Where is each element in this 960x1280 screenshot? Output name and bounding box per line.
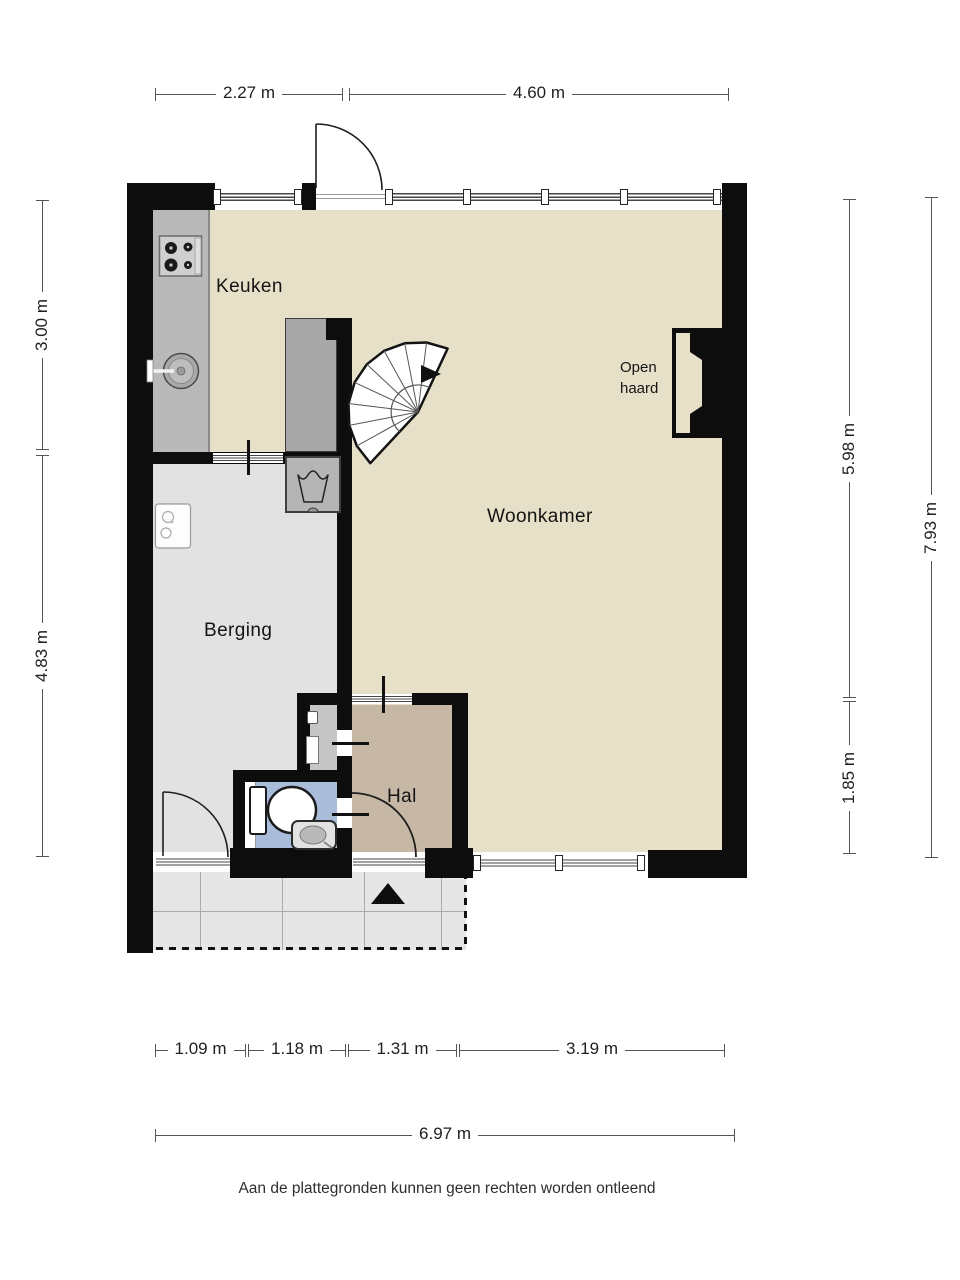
dim-tick	[843, 853, 856, 854]
dim-line	[330, 1050, 345, 1051]
room-label-keuken: Keuken	[216, 276, 283, 298]
dim-label: 1.09 m	[168, 1039, 234, 1059]
storage-door	[163, 792, 228, 857]
dim-line	[349, 1050, 370, 1051]
dim-right-inner-2: 1.85 m	[839, 701, 859, 854]
dim-tick	[36, 856, 49, 857]
disclaimer-text: Aan de plattegronden kunnen geen rechten…	[0, 1180, 894, 1198]
dim-bottom-2: 1.18 m	[248, 1040, 346, 1060]
dim-label: 2.27 m	[216, 83, 282, 103]
dim-line	[156, 1135, 412, 1136]
dim-top-1: 2.27 m	[155, 84, 343, 104]
entrance-arrow-icon	[371, 883, 405, 904]
dim-line	[42, 456, 43, 623]
dim-line	[572, 94, 728, 95]
dim-tick	[245, 1044, 246, 1057]
dim-label: 3.19 m	[559, 1039, 625, 1059]
dim-line	[849, 811, 850, 854]
floorplan-canvas: Keuken Woonkamer Berging Hal Open haard …	[0, 0, 960, 1280]
dim-line	[42, 358, 43, 449]
dim-line	[849, 702, 850, 745]
dim-label: 5.98 m	[839, 416, 859, 482]
top-entry-door	[316, 124, 382, 190]
dim-tick	[925, 857, 938, 858]
dim-line	[436, 1050, 457, 1051]
dim-line	[625, 1050, 724, 1051]
dim-label: 4.60 m	[506, 83, 572, 103]
room-label-hal: Hal	[387, 786, 417, 808]
dim-top-2: 4.60 m	[349, 84, 729, 104]
dim-label: 3.00 m	[32, 292, 52, 358]
stove-icon	[160, 236, 202, 276]
fixtures-overlay	[0, 0, 960, 1280]
washing-machine-icon	[286, 457, 340, 512]
dim-line	[42, 689, 43, 856]
dim-tick	[342, 88, 343, 101]
dim-line	[156, 94, 216, 95]
dim-line	[234, 1050, 246, 1051]
dim-line	[849, 482, 850, 698]
dim-label: 1.18 m	[264, 1039, 330, 1059]
dim-bottom-1: 1.09 m	[155, 1040, 246, 1060]
kitchen-sink-icon	[147, 354, 199, 389]
dim-tick	[345, 1044, 346, 1057]
dim-line	[42, 201, 43, 292]
fireplace-icon	[672, 328, 722, 438]
dim-tick	[36, 449, 49, 450]
dim-bottom-4: 3.19 m	[459, 1040, 725, 1060]
dim-line	[249, 1050, 264, 1051]
dim-line	[350, 94, 506, 95]
dim-line	[460, 1050, 559, 1051]
dim-right-inner-1: 5.98 m	[839, 199, 859, 698]
dim-label: 1.31 m	[370, 1039, 436, 1059]
dim-right-outer: 7.93 m	[921, 197, 941, 858]
dim-line	[931, 561, 932, 858]
room-label-open-haard: Open haard	[620, 357, 668, 399]
dim-label: 1.85 m	[839, 745, 859, 811]
dim-left-2: 4.83 m	[32, 455, 52, 857]
dim-tick	[724, 1044, 725, 1057]
dim-bottom-total: 6.97 m	[155, 1125, 735, 1145]
dim-tick	[728, 88, 729, 101]
hand-basin-icon	[292, 821, 336, 849]
dim-line	[156, 1050, 168, 1051]
dim-bottom-3: 1.31 m	[348, 1040, 457, 1060]
room-label-woonkamer: Woonkamer	[487, 506, 593, 528]
boiler-icon	[156, 504, 191, 548]
dim-line	[849, 200, 850, 416]
dim-line	[282, 94, 342, 95]
room-label-berging: Berging	[204, 620, 272, 642]
dim-tick	[843, 697, 856, 698]
dim-tick	[456, 1044, 457, 1057]
dim-tick	[734, 1129, 735, 1142]
dim-label: 7.93 m	[921, 495, 941, 561]
spiral-staircase-icon	[349, 343, 448, 464]
dim-line	[931, 198, 932, 495]
dim-line	[478, 1135, 734, 1136]
dim-left-1: 3.00 m	[32, 200, 52, 450]
dim-label: 4.83 m	[32, 623, 52, 689]
dim-label: 6.97 m	[412, 1124, 478, 1144]
